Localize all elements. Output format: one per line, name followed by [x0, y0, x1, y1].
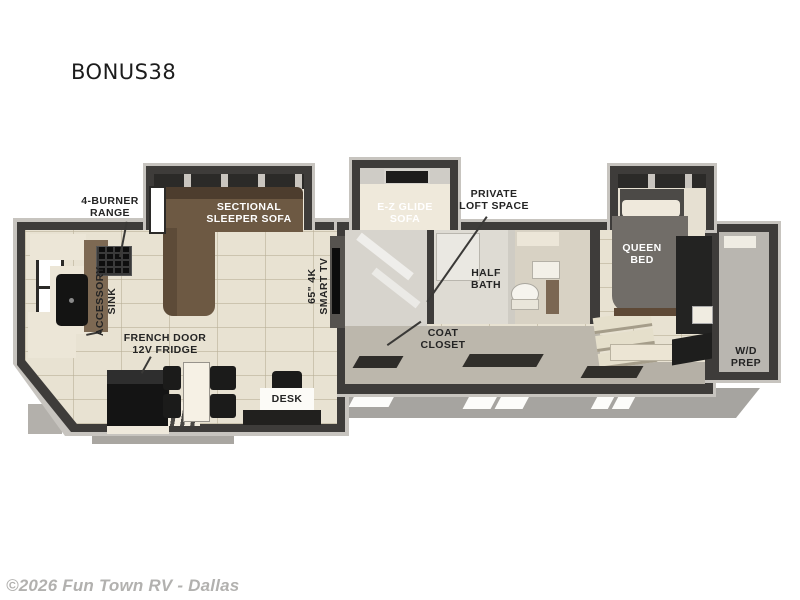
- dinette-chair: [163, 366, 181, 390]
- sectional-sofa-chaise: [163, 228, 215, 316]
- faucet-icon: [69, 298, 74, 303]
- entry-step-panel: [349, 394, 396, 407]
- queen-bed-label: QUEEN BED: [602, 242, 682, 266]
- nightstand: [692, 306, 713, 324]
- dinette-table: [183, 362, 210, 422]
- bed-bench: [610, 344, 678, 361]
- fridge: [107, 370, 169, 426]
- sectional-sofa-label: SECTIONAL SLEEPER SOFA: [189, 201, 309, 225]
- accessory-sink-basin: [56, 274, 88, 326]
- bath-vanity: [532, 261, 560, 279]
- partition-bedroom: [590, 230, 600, 324]
- wd-prep-shelf: [724, 236, 756, 248]
- partition-loft-bath: [427, 230, 434, 324]
- bed-slideout-roof: [618, 174, 706, 188]
- bed-pillows: [622, 200, 680, 217]
- dinette-chair: [210, 366, 236, 390]
- range-label: 4-BURNER RANGE: [62, 195, 158, 219]
- half-bath-label: HALF BATH: [446, 267, 526, 291]
- desk-label: DESK: [260, 388, 314, 410]
- floorplan: DESK 4-BURNER RANGE SECTIONAL SLEEPER SO…: [0, 0, 800, 600]
- hall-rug: [581, 366, 644, 378]
- tv-icon: [332, 248, 340, 314]
- fridge-label: FRENCH DOOR 12V FRIDGE: [105, 332, 225, 356]
- hall-rug: [462, 354, 544, 367]
- toilet-tank: [511, 299, 539, 310]
- dinette-chair: [163, 394, 181, 418]
- smart-tv-label: 65" 4K SMART TV: [306, 254, 330, 318]
- coat-closet-label: COAT CLOSET: [403, 327, 483, 351]
- desk-surface: [243, 410, 321, 425]
- kitchen-cabinet-upper: [30, 234, 86, 260]
- accessory-sink-label: ACCESSORY SINK: [94, 262, 118, 340]
- floorplan-page: BONUS38: [0, 0, 800, 600]
- fridge-base: [107, 426, 169, 434]
- bath-storage: [546, 280, 559, 314]
- watermark: ©2026 Fun Town RV - Dallas: [6, 576, 239, 596]
- ez-slideout-window: [384, 169, 430, 185]
- bath-cabinet: [517, 232, 559, 246]
- private-loft-label: PRIVATE LOFT SPACE: [434, 188, 554, 212]
- desk-label-card: DESK: [260, 388, 314, 410]
- entry-mat: [353, 356, 404, 368]
- wd-prep-label: W/D PREP: [716, 345, 776, 369]
- dinette-chair: [210, 394, 236, 418]
